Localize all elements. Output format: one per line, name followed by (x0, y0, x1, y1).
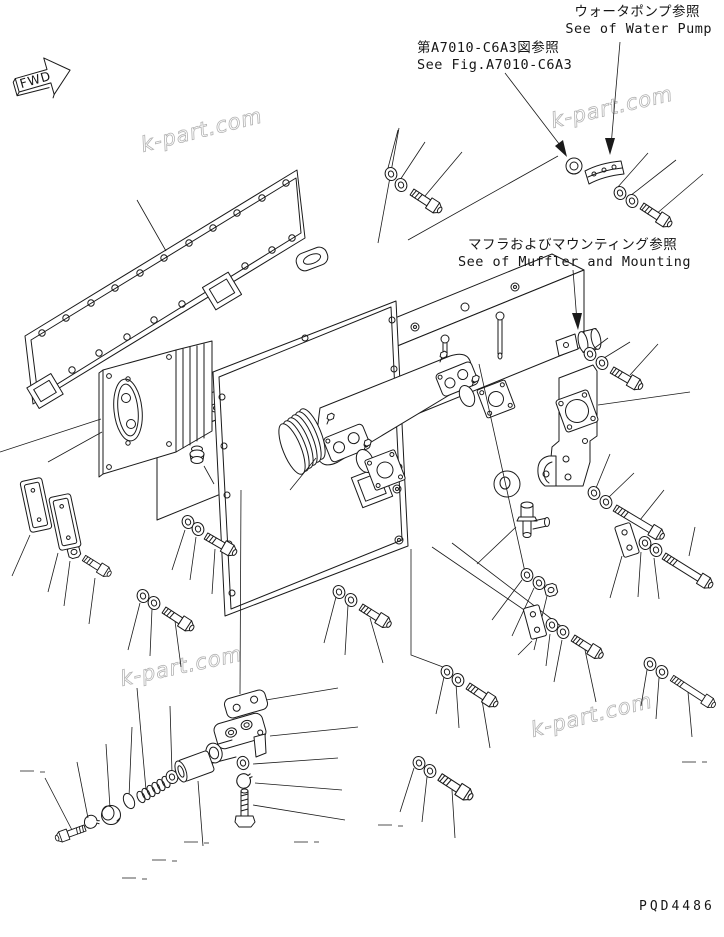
water-pump-note-jp: ウォータポンプ参照 (574, 3, 700, 20)
valve-body (204, 712, 268, 765)
long-bolt (669, 673, 718, 710)
elbow-fitting (517, 502, 550, 538)
bolt (161, 605, 197, 634)
snap-ring (236, 772, 254, 789)
bracket (614, 522, 639, 557)
side-plates (20, 477, 82, 550)
plug (190, 446, 204, 464)
housing-top-flange (294, 245, 330, 273)
bolt (436, 771, 475, 803)
washer (331, 584, 346, 600)
nut (544, 583, 559, 598)
washer (598, 494, 613, 510)
muffler-note-en: See of Muffler and Mounting (458, 254, 691, 270)
side-cover (538, 365, 599, 486)
parts-catalog-page: k-part.com k-part.com k-part.com k-part.… (0, 0, 724, 937)
washer (586, 485, 601, 501)
drawing-number: PQD4486 (639, 899, 715, 914)
valve-internals (54, 750, 215, 844)
valve-plunger (173, 750, 215, 783)
washer (624, 193, 639, 209)
washer (594, 355, 609, 371)
watermark-text: k-part.com (118, 642, 245, 691)
washer (654, 664, 669, 680)
washer (612, 185, 627, 201)
valve-stud (235, 789, 255, 827)
watermark-text: k-part.com (528, 688, 654, 741)
housing-boss (494, 471, 520, 497)
washer (236, 755, 250, 771)
bolt (570, 633, 606, 662)
bushing (566, 158, 582, 174)
watermark-text: k-part.com (549, 82, 676, 133)
centerline-marks (20, 762, 707, 879)
fig-ref-note-jp: 第A7010-C6A3図参照 (417, 39, 559, 56)
clamp-strap (585, 161, 624, 184)
watermark-text: k-part.com (138, 103, 264, 156)
bolt (609, 365, 645, 393)
fig-ref-note-en: See Fig.A7010-C6A3 (417, 57, 572, 73)
front-cover (99, 341, 212, 477)
valve-gasket (223, 689, 269, 720)
o-ring (121, 792, 137, 811)
bolt (639, 201, 675, 230)
parts-diagram: k-part.com k-part.com k-part.com k-part.… (0, 0, 724, 937)
water-pump-note-en: See of Water Pump (565, 21, 712, 37)
long-bolt (661, 551, 716, 591)
bolt (358, 602, 394, 631)
washer (343, 592, 358, 608)
bolt (409, 187, 445, 216)
valve-cap (102, 806, 121, 825)
muffler-note-jp: マフラおよびマウンティング参照 (468, 236, 677, 253)
washer (642, 656, 657, 672)
fwd-arrow-icon: FWD (9, 52, 76, 107)
bolt (81, 553, 113, 579)
